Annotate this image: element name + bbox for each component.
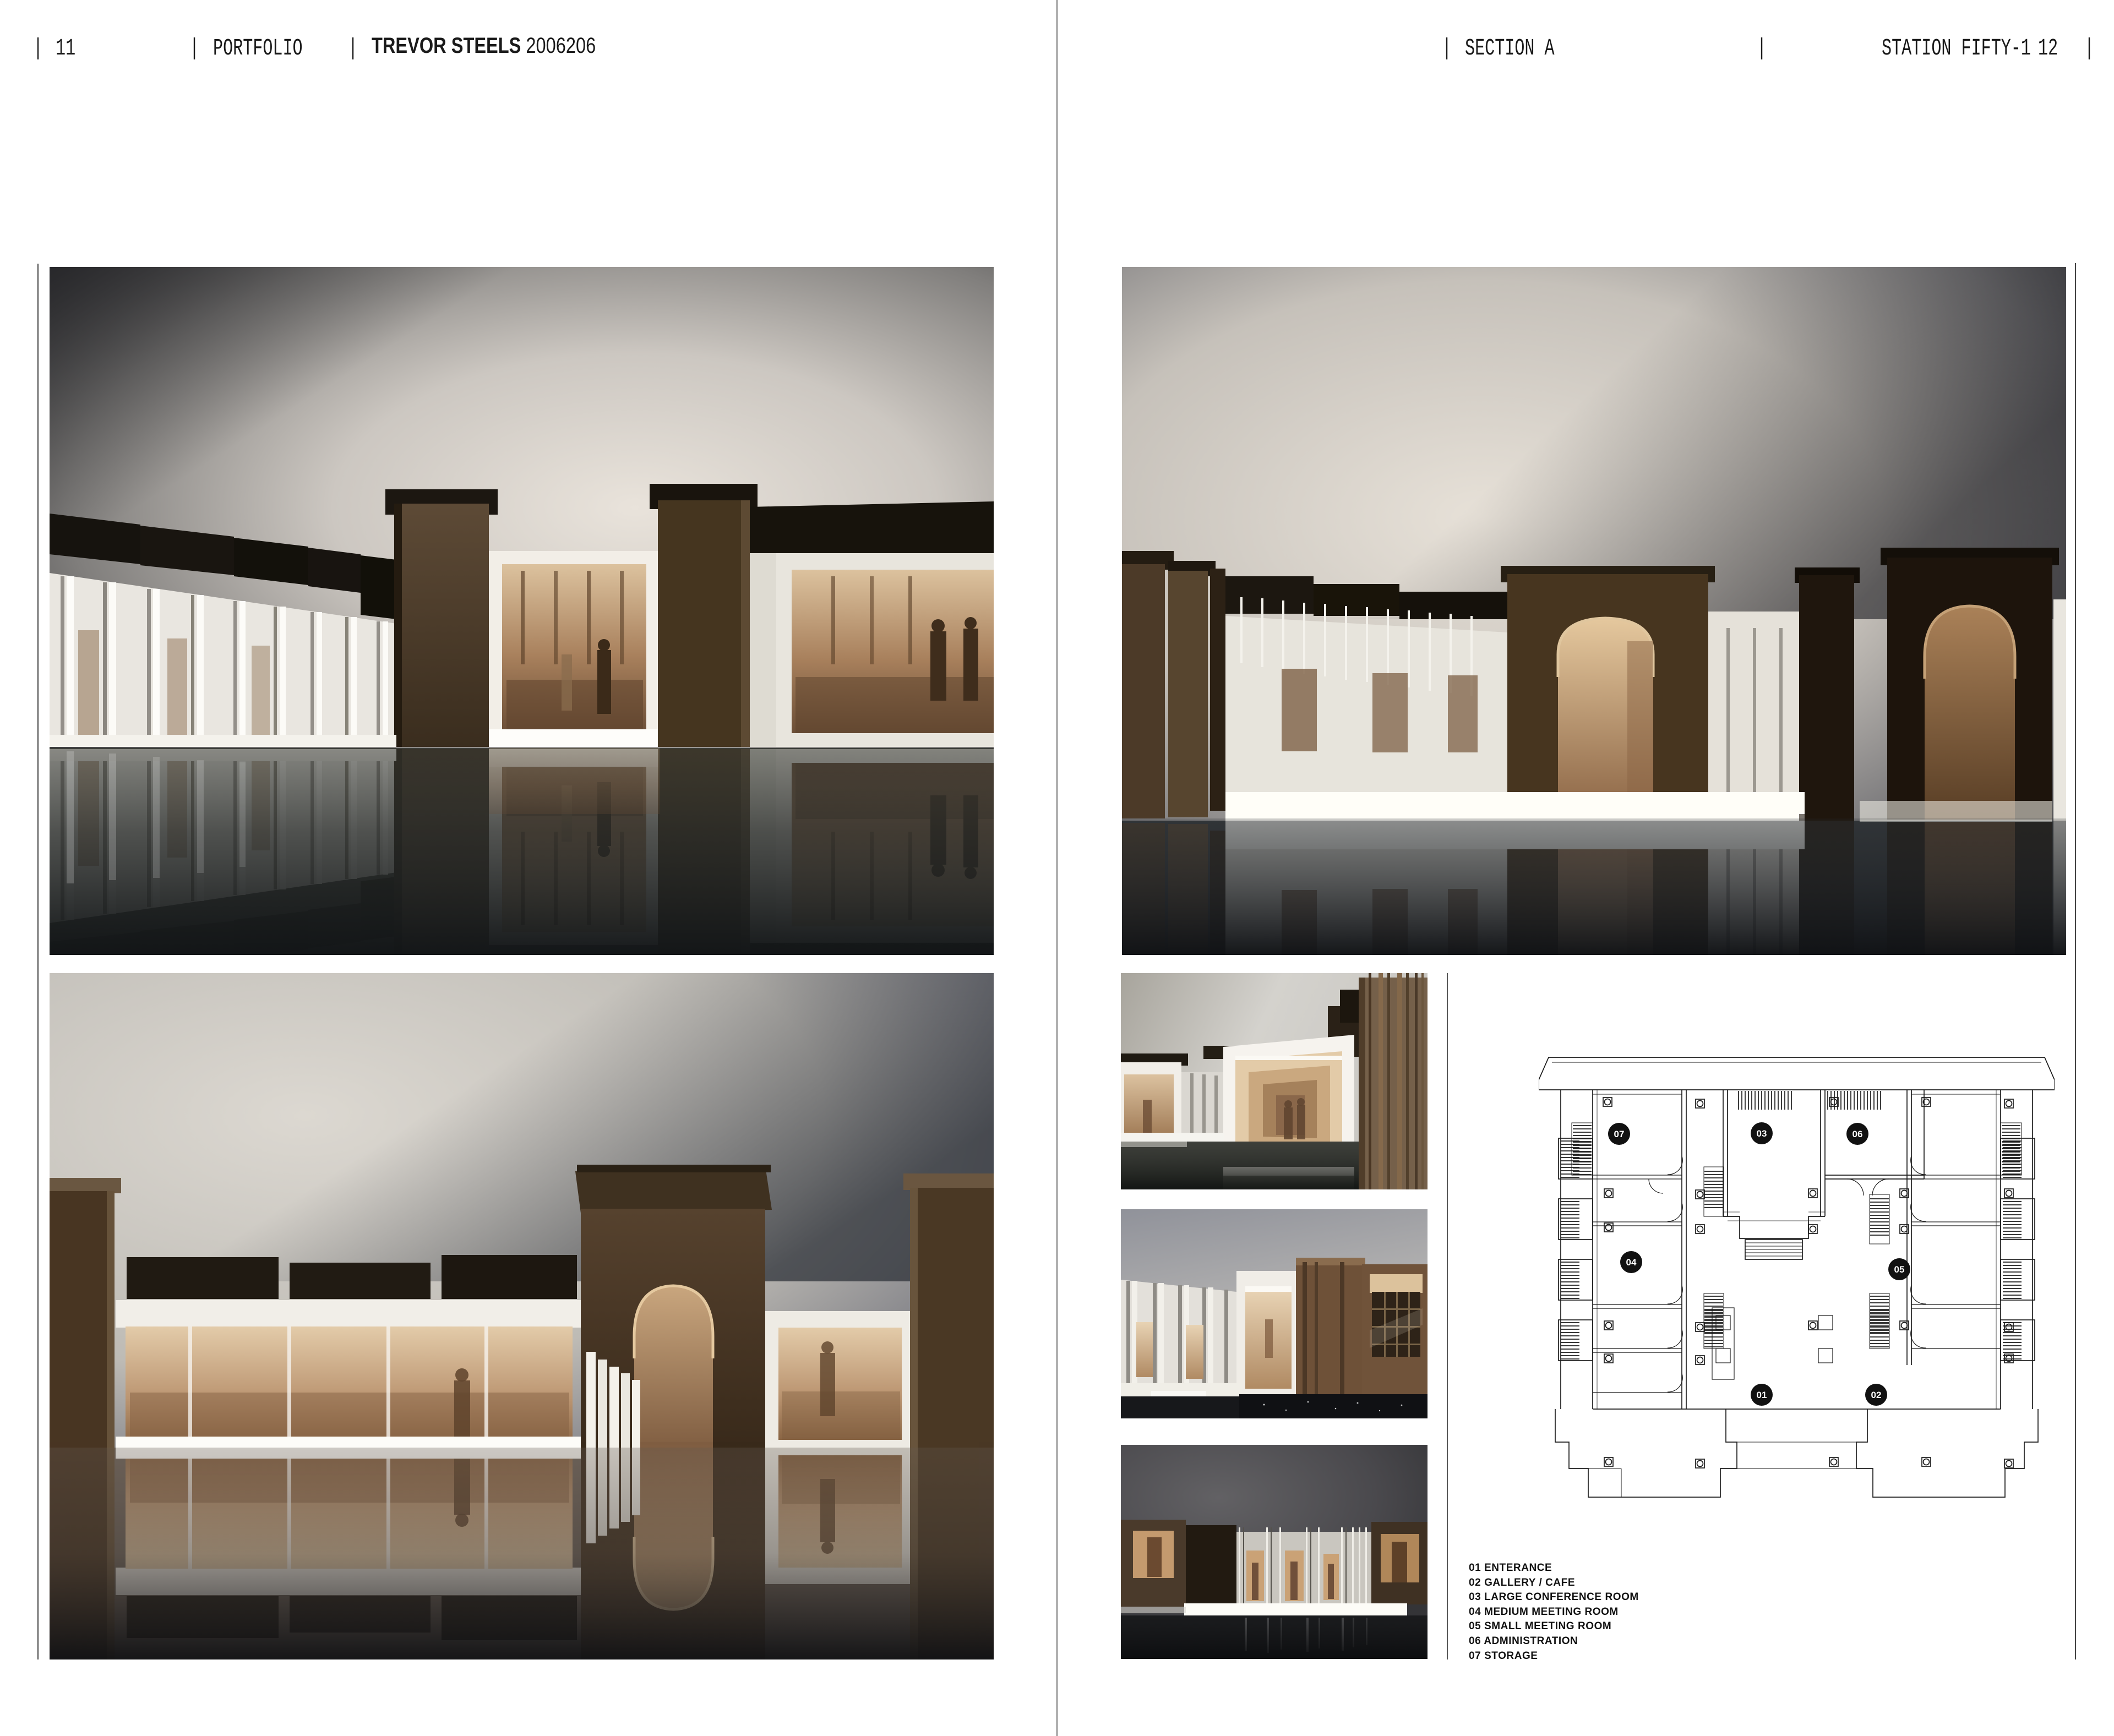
svg-text:07: 07 <box>1614 1129 1625 1139</box>
svg-text:06: 06 <box>1853 1129 1863 1139</box>
svg-text:03: 03 <box>1757 1128 1767 1139</box>
svg-text:01: 01 <box>1757 1390 1767 1400</box>
svg-text:02: 02 <box>1871 1390 1882 1400</box>
svg-text:04: 04 <box>1626 1257 1637 1268</box>
svg-text:05: 05 <box>1894 1264 1905 1275</box>
